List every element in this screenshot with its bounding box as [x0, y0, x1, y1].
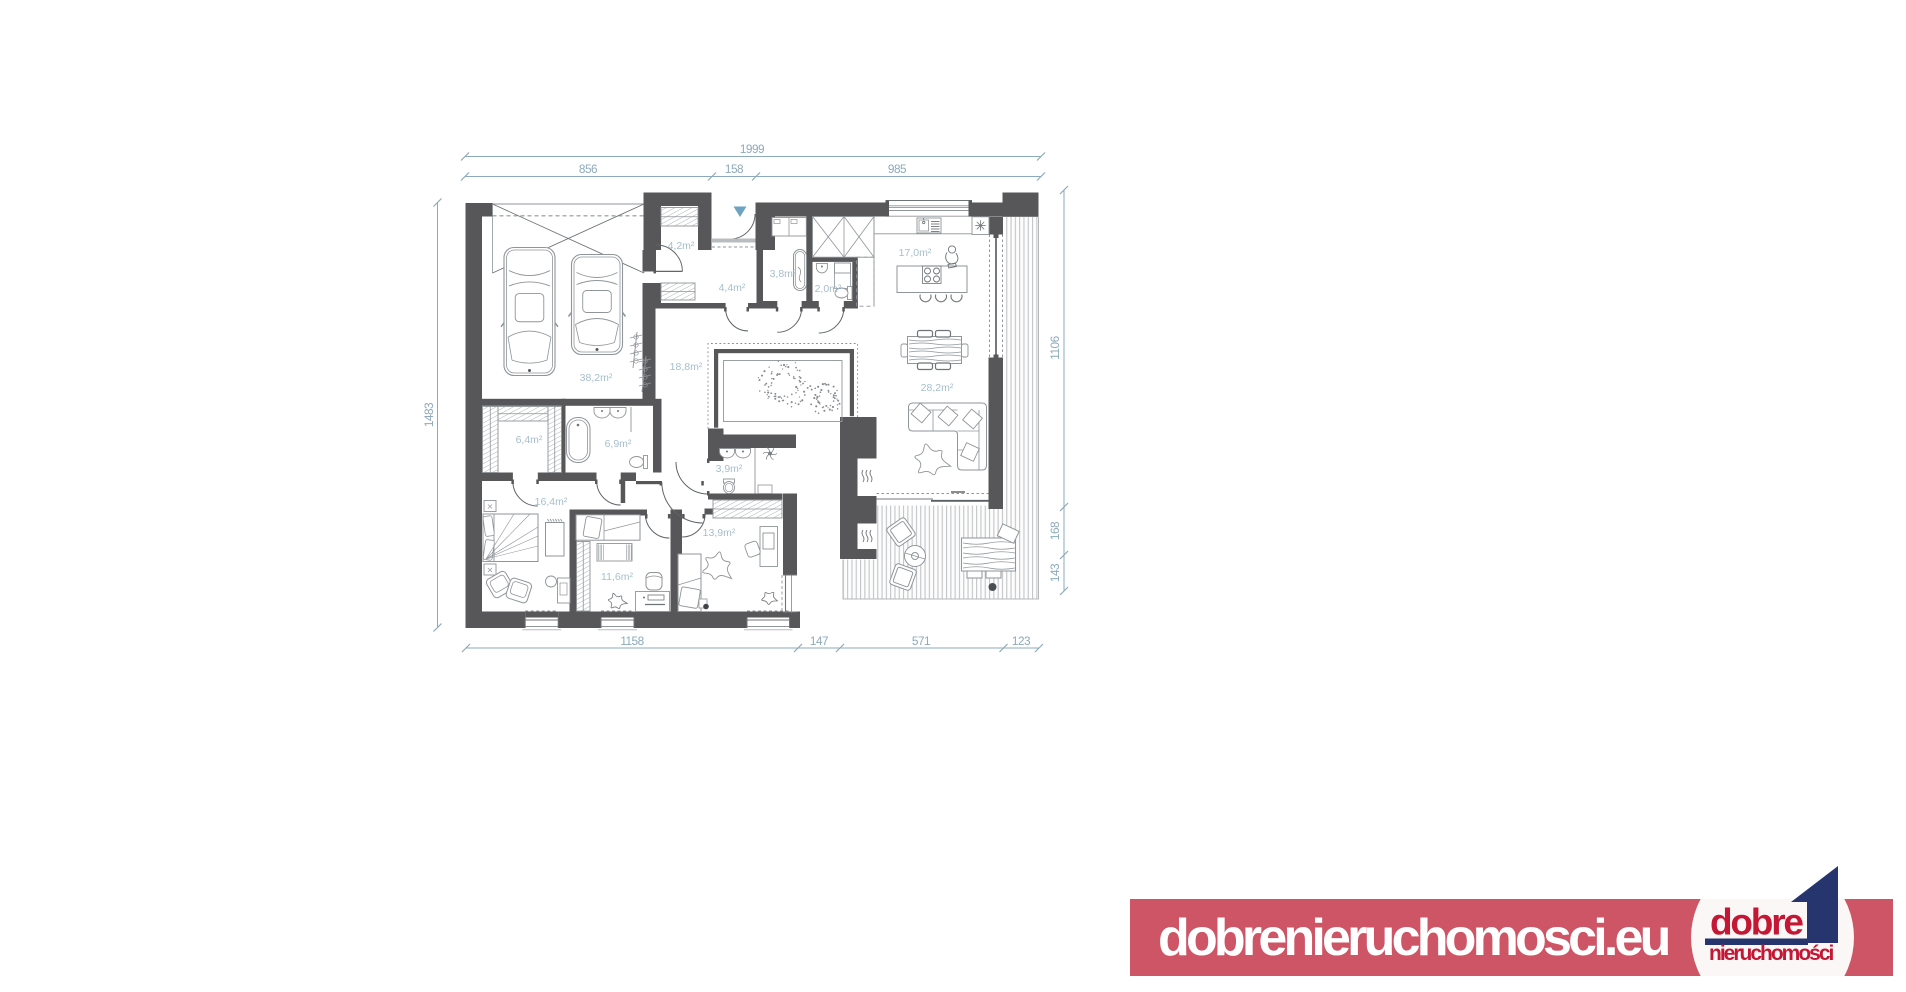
svg-text:6,9m²: 6,9m²	[605, 438, 632, 450]
svg-text:4,2m²: 4,2m²	[668, 240, 695, 252]
svg-text:856: 856	[579, 162, 598, 176]
svg-text:3,9m²: 3,9m²	[716, 463, 743, 475]
svg-text:16,4m²: 16,4m²	[535, 496, 568, 508]
svg-text:143: 143	[1048, 563, 1062, 582]
svg-text:147: 147	[810, 634, 828, 648]
svg-text:571: 571	[912, 634, 930, 648]
svg-text:158: 158	[725, 162, 744, 176]
svg-text:2,0m²: 2,0m²	[815, 283, 842, 295]
svg-text:nieruchomości: nieruchomości	[1709, 942, 1834, 965]
svg-text:6,4m²: 6,4m²	[516, 434, 543, 446]
svg-text:11,6m²: 11,6m²	[601, 571, 633, 583]
svg-text:dobre: dobre	[1710, 902, 1803, 943]
svg-text:123: 123	[1012, 634, 1031, 648]
svg-text:1483: 1483	[422, 402, 436, 427]
svg-text:17,0m²: 17,0m²	[899, 247, 932, 259]
svg-text:1999: 1999	[740, 142, 764, 156]
svg-text:13,9m²: 13,9m²	[703, 527, 736, 539]
svg-text:168: 168	[1048, 521, 1062, 540]
svg-text:3,8m²: 3,8m²	[770, 268, 797, 280]
svg-text:1158: 1158	[620, 634, 644, 648]
svg-text:1106: 1106	[1048, 335, 1062, 359]
svg-text:4,4m²: 4,4m²	[719, 282, 746, 294]
svg-text:28,2m²: 28,2m²	[921, 382, 954, 394]
svg-text:38,2m²: 38,2m²	[580, 372, 613, 384]
svg-text:18,8m²: 18,8m²	[670, 361, 703, 373]
svg-text:985: 985	[888, 162, 907, 176]
